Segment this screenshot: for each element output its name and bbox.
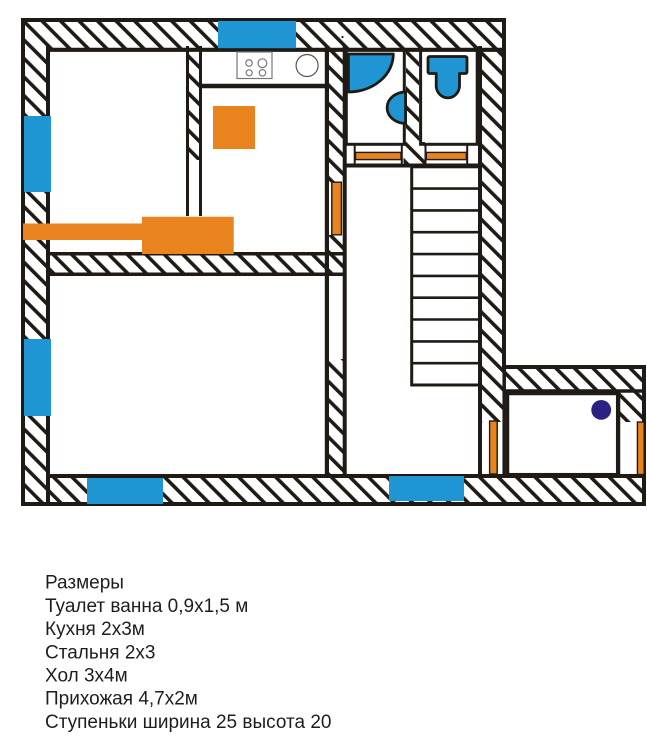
svg-text:Прихожая 4,7х2м: Прихожая 4,7х2м (45, 689, 198, 710)
svg-text:Кухня 2х3м: Кухня 2х3м (45, 619, 145, 640)
svg-text:Хол 3х4м: Хол 3х4м (45, 666, 128, 687)
svg-text:Ступеньки ширина 25 высота 20: Ступеньки ширина 25 высота 20 (45, 712, 331, 733)
svg-text:Стальня 2х3: Стальня 2х3 (45, 642, 155, 663)
svg-text:Размеры: Размеры (45, 572, 124, 593)
svg-text:Туалет ванна 0,9х1,5 м: Туалет ванна 0,9х1,5 м (45, 596, 248, 617)
